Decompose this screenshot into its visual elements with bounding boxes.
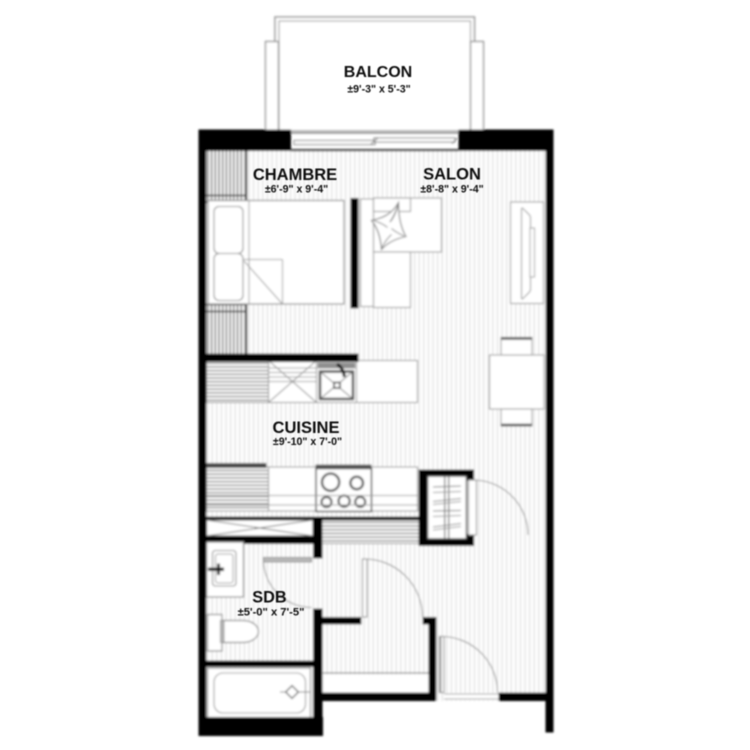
svg-text:BALCON: BALCON bbox=[344, 64, 412, 81]
svg-text:±8'-8" x 9'-4": ±8'-8" x 9'-4" bbox=[420, 184, 483, 196]
svg-text:±6'-9" x 9'-4": ±6'-9" x 9'-4" bbox=[265, 184, 328, 196]
svg-text:±9'-3" x 5'-3": ±9'-3" x 5'-3" bbox=[347, 84, 410, 96]
svg-text:±5'-0" x 7'-5": ±5'-0" x 7'-5" bbox=[238, 607, 305, 619]
svg-text:CHAMBRE: CHAMBRE bbox=[253, 166, 337, 184]
svg-text:±9'-10" x 7'-0": ±9'-10" x 7'-0" bbox=[273, 436, 342, 448]
svg-text:SALON: SALON bbox=[423, 166, 481, 184]
svg-text:CUISINE: CUISINE bbox=[273, 419, 340, 437]
svg-text:SDB: SDB bbox=[252, 589, 287, 607]
